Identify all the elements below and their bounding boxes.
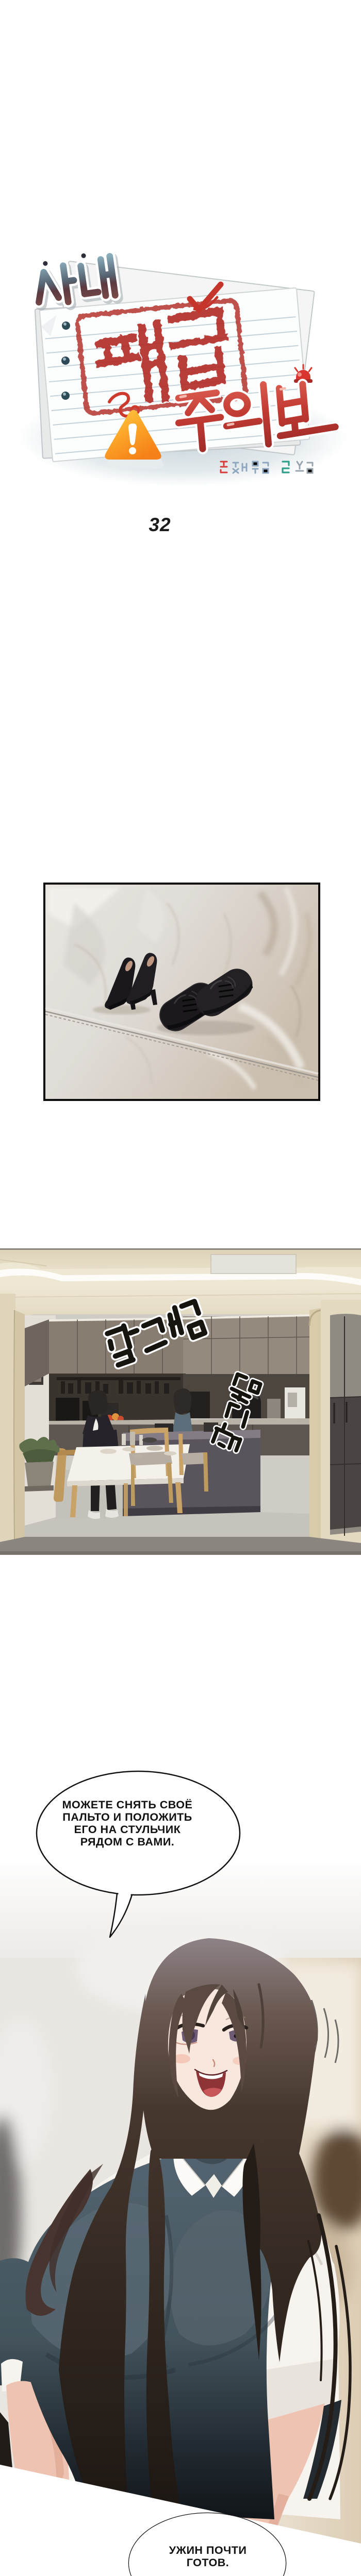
svg-text:ГОТОВ.: ГОТОВ.	[187, 2556, 229, 2569]
svg-text:РЯДОМ С ВАМИ.: РЯДОМ С ВАМИ.	[80, 1836, 175, 1848]
svg-text:МОЖЕТЕ СНЯТЬ СВОЁ: МОЖЕТЕ СНЯТЬ СВОЁ	[62, 1799, 193, 1811]
svg-text:УЖИН ПОЧТИ: УЖИН ПОЧТИ	[169, 2544, 247, 2556]
svg-text:ПАЛЬТО И ПОЛОЖИТЬ: ПАЛЬТО И ПОЛОЖИТЬ	[62, 1811, 192, 1823]
svg-text:ЕГО НА СТУЛЬЧИК: ЕГО НА СТУЛЬЧИК	[74, 1823, 181, 1836]
